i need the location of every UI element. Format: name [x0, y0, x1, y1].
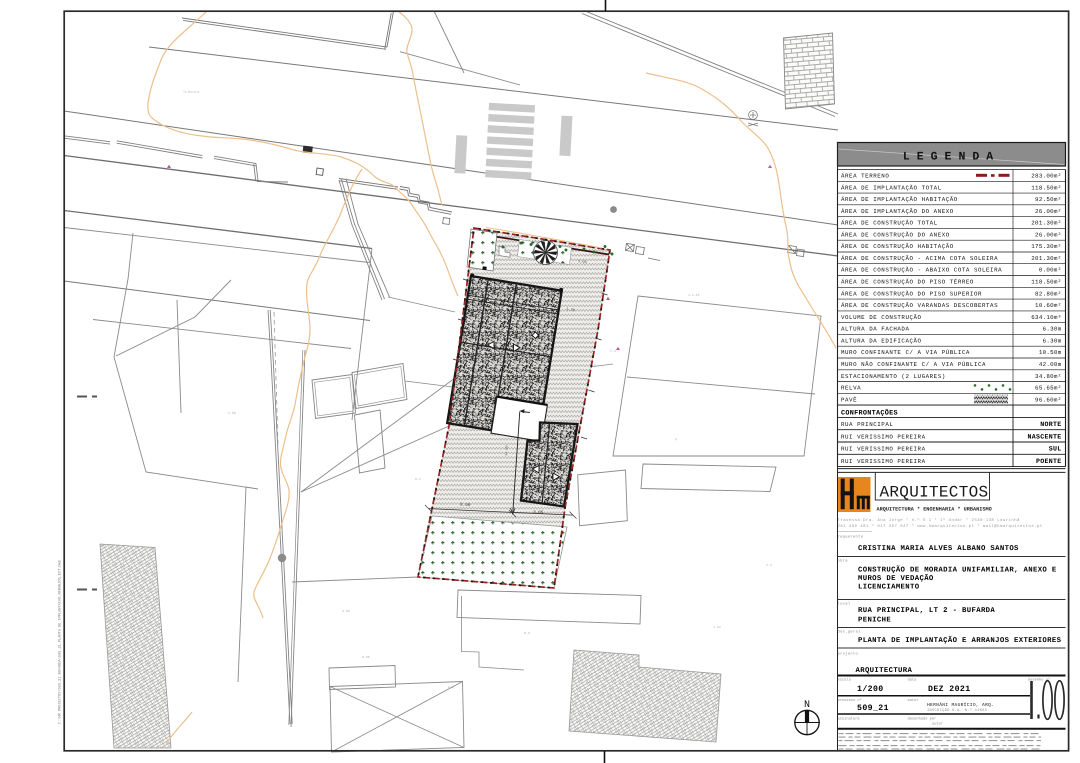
svg-text:0.8: 0.8: [524, 631, 530, 635]
svg-text:ÁREA DE IMPLANTAÇÃO DO ANEXO: ÁREA DE IMPLANTAÇÃO DO ANEXO: [841, 208, 954, 215]
svg-text:MURO NÃO CONFINANTE C/ A VIA P: MURO NÃO CONFINANTE C/ A VIA PÚBLICA: [841, 361, 986, 368]
svg-text:ÁREA DE CONSTRUÇÃO TOTAL: ÁREA DE CONSTRUÇÃO TOTAL: [841, 220, 938, 227]
svg-text:PLANTA DE IMPLANTAÇÃO E ARRANJ: PLANTA DE IMPLANTAÇÃO E ARRANJOS EXTERIO…: [858, 635, 1062, 645]
svg-text:ÁREA DE IMPLANTAÇÃO HABITAÇÃO: ÁREA DE IMPLANTAÇÃO HABITAÇÃO: [841, 196, 958, 203]
svg-text:14.50: 14.50: [504, 445, 510, 456]
svg-text:local: local: [838, 602, 851, 607]
svg-text:NORTE: NORTE: [1040, 421, 1061, 428]
svg-text:RELVA: RELVA: [841, 385, 861, 392]
svg-text:ÁREA TERRENO: ÁREA TERRENO: [841, 173, 889, 180]
svg-text:0.00m²: 0.00m²: [1039, 267, 1062, 274]
svg-text:requerente: requerente: [838, 535, 864, 540]
svg-text:261 469 481 * 917 367 647 * ww: 261 469 481 * 917 367 647 * www.hmarquit…: [838, 524, 1043, 529]
svg-text:92.50m²: 92.50m²: [1035, 196, 1061, 203]
svg-text:118.50m²: 118.50m²: [1031, 184, 1061, 191]
svg-text:6.30m: 6.30m: [1043, 326, 1062, 333]
svg-text:ÁREA DE CONSTRUÇÃO DO ANEXO: ÁREA DE CONSTRUÇÃO DO ANEXO: [841, 231, 950, 238]
svg-text:obra: obra: [838, 559, 849, 564]
svg-text:LICENCIAMENTO: LICENCIAMENTO: [858, 583, 920, 591]
svg-text:34.80m²: 34.80m²: [1035, 373, 1061, 380]
svg-text:1.50: 1.50: [228, 411, 236, 415]
svg-text:RUA PRINCIPAL, LT 2 - BUFARDA: RUA PRINCIPAL, LT 2 - BUFARDA: [858, 607, 995, 615]
svg-text:0.96: 0.96: [362, 655, 370, 659]
svg-text:7.4: 7.4: [610, 349, 616, 353]
svg-text:SUL: SUL: [1049, 446, 1062, 453]
svg-text:2.4: 2.4: [766, 563, 772, 567]
svg-text:PAVÊ: PAVÊ: [841, 396, 857, 403]
svg-text:A-2: A-2: [448, 685, 454, 689]
svg-text:MUROS DE VEDAÇÃO: MUROS DE VEDAÇÃO: [858, 573, 934, 583]
svg-text:ÁREA DE CONSTRUÇÃO DO PISO TÉR: ÁREA DE CONSTRUÇÃO DO PISO TÉRREO: [841, 279, 974, 286]
svg-text:42.00m: 42.00m: [1039, 361, 1062, 368]
svg-text:HERNÂNI MAURÍCIO, ARQ.: HERNÂNI MAURÍCIO, ARQ.: [927, 702, 994, 708]
svg-text:projecto: projecto: [838, 652, 859, 657]
svg-text:ESTACIONAMENTO (2 LUGARES): ESTACIONAMENTO (2 LUGARES): [841, 373, 946, 380]
svg-text:ÁREA DE CONSTRUÇÃO - ABAIXO CO: ÁREA DE CONSTRUÇÃO - ABAIXO COTA SOLEIRA: [841, 267, 1002, 274]
svg-text:ÁREA DE CONSTRUÇÃO VARANDAS DE: ÁREA DE CONSTRUÇÃO VARANDAS DESCOBERTAS: [841, 302, 998, 309]
svg-text:N: N: [804, 700, 810, 711]
svg-text:CONFRONTAÇÕES: CONFRONTAÇÕES: [841, 408, 898, 417]
svg-text:c.1.45: c.1.45: [688, 293, 700, 297]
svg-text:ÁREA DE CONSTRUÇÃO - ACIMA COT: ÁREA DE CONSTRUÇÃO - ACIMA COTA SOLEIRA: [841, 255, 998, 262]
svg-text:509_21: 509_21: [857, 704, 889, 713]
svg-text:0.2: 0.2: [415, 477, 421, 481]
svg-text:Telheiro: Telheiro: [183, 90, 199, 95]
svg-text:PENICHE: PENICHE: [858, 616, 891, 624]
svg-text:ARQUITECTOS: ARQUITECTOS: [880, 484, 989, 502]
svg-text:data: data: [908, 678, 918, 683]
svg-text:NASCENTE: NASCENTE: [1027, 433, 1061, 440]
svg-text:175.30m²: 175.30m²: [1031, 243, 1061, 250]
svg-text:MURO CONFINANTE C/ A VIA PÚBLI: MURO CONFINANTE C/ A VIA PÚBLICA: [841, 349, 970, 356]
svg-text:8.50: 8.50: [460, 503, 471, 509]
svg-text:ÁREA DE IMPLANTAÇÃO TOTAL: ÁREA DE IMPLANTAÇÃO TOTAL: [841, 184, 942, 191]
svg-text:des.geral: des.geral: [838, 630, 862, 635]
svg-text:634.10m³: 634.10m³: [1031, 314, 1061, 321]
svg-text:RUA PRINCIPAL: RUA PRINCIPAL: [841, 421, 893, 428]
svg-text:Travessa Dra. Ana Jorge * n.º: Travessa Dra. Ana Jorge * n.º 5 1 * 1º A…: [838, 518, 1021, 523]
svg-text:201.30m²: 201.30m²: [1031, 255, 1061, 262]
svg-text:6.30m: 6.30m: [1043, 337, 1062, 344]
svg-text:82.80m²: 82.80m²: [1035, 290, 1061, 297]
svg-text:escala: escala: [838, 678, 852, 683]
svg-text:4.00: 4.00: [342, 609, 350, 613]
svg-text:processo nº: processo nº: [838, 698, 862, 703]
svg-text:VOLUME DE CONSTRUÇÃO: VOLUME DE CONSTRUÇÃO: [841, 314, 922, 321]
svg-text:RUI VERISSIMO PEREIRA: RUI VERISSIMO PEREIRA: [841, 433, 926, 440]
svg-text:26.00m²: 26.00m²: [1035, 208, 1061, 215]
svg-text:autor: autor: [932, 722, 943, 727]
svg-text:ARQUITECTURA: ARQUITECTURA: [856, 667, 913, 675]
svg-text:201.30m²: 201.30m²: [1031, 220, 1061, 227]
svg-text:1/200: 1/200: [857, 685, 884, 694]
svg-text:26.00m²: 26.00m²: [1035, 231, 1061, 238]
svg-text:CRISTINA MARIA ALVES ALBANO SA: CRISTINA MARIA ALVES ALBANO SANTOS: [858, 545, 1019, 553]
svg-text:ALTURA DA FACHADA: ALTURA DA FACHADA: [841, 326, 910, 333]
svg-text:3.05: 3.05: [533, 510, 544, 516]
svg-text:ÁREA DE CONSTRUÇÃO DO PISO SUP: ÁREA DE CONSTRUÇÃO DO PISO SUPERIOR: [841, 290, 982, 297]
svg-text:283.00m²: 283.00m²: [1031, 173, 1061, 180]
svg-text:ARQUITECTURA * ENGENHARIA * UR: ARQUITECTURA * ENGENHARIA * URBANISMO: [877, 507, 992, 513]
svg-text:RUI VERISSIMO PEREIRA: RUI VERISSIMO PEREIRA: [841, 446, 926, 453]
svg-text:CONSTRUÇÃO DE MORADIA UNIFAMIL: CONSTRUÇÃO DE MORADIA UNIFAMILIAR, ANEXO…: [858, 564, 1057, 574]
svg-text:POENTE: POENTE: [1036, 458, 1062, 465]
svg-text:10.50m: 10.50m: [1039, 349, 1062, 356]
svg-text:LEGENDA: LEGENDA: [903, 151, 1000, 164]
svg-text:ÁREA DE CONSTRUÇÃO HABITAÇÃO: ÁREA DE CONSTRUÇÃO HABITAÇÃO: [841, 243, 954, 250]
svg-text:RUI VERISSIMO PEREIRA: RUI VERISSIMO PEREIRA: [841, 458, 926, 465]
svg-text:p: p: [675, 437, 677, 441]
svg-text:autor: autor: [908, 698, 919, 703]
svg-text:65.65m²: 65.65m²: [1035, 385, 1061, 392]
svg-text:1.14: 1.14: [713, 625, 721, 629]
svg-text:118.50m²: 118.50m²: [1031, 279, 1061, 286]
svg-text:96.60m²: 96.60m²: [1035, 396, 1061, 403]
svg-text:desenhado por: desenhado por: [908, 716, 937, 721]
svg-text:assinatura: assinatura: [838, 716, 861, 721]
svg-text:10.60m²: 10.60m²: [1035, 302, 1061, 309]
svg-text:DEZ 2021: DEZ 2021: [928, 685, 971, 694]
svg-text:ALTURA DA EDIFICAÇÃO: ALTURA DA EDIFICAÇÃO: [841, 337, 922, 344]
svg-text:C:\HM PROJECTOS\509_21 BUFARDA: C:\HM PROJECTOS\509_21 BUFARDA\509_21_PL…: [58, 560, 63, 724]
